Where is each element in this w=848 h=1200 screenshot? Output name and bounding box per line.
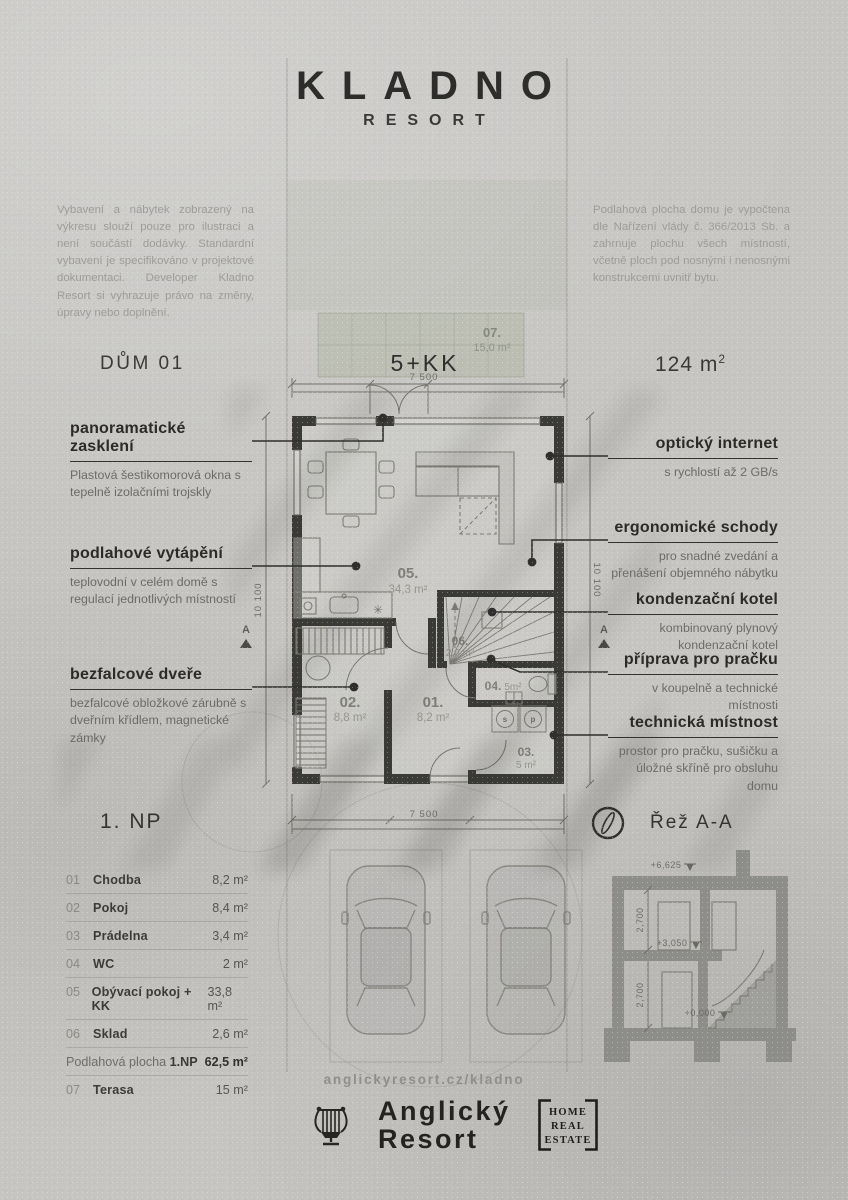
row-no: 04: [66, 957, 93, 971]
room-label-05: 05.: [398, 565, 419, 582]
callout-title: kondenzační kotel: [608, 591, 778, 615]
dimension-right: 10 100: [586, 412, 602, 788]
callout-desc: teplovodní v celém domě s regulací jedno…: [70, 574, 252, 609]
row-name: Pokoj: [93, 901, 128, 915]
table-row: 01 Chodba 8,2 m²: [66, 866, 248, 894]
row-no: 03: [66, 929, 93, 943]
callout-doors: bezfalcové dveře bezfalcové obložkové zá…: [70, 666, 252, 747]
dim-height-left: 10 100: [253, 582, 264, 617]
callout-washer-prep: příprava pro pračku v koupelně a technic…: [608, 651, 778, 715]
room-area-02: 8,8 m²: [334, 712, 367, 724]
callout-title: podlahové vytápění: [70, 545, 252, 569]
callout-boiler: kondenzační kotel kombinovaný plynový ko…: [608, 591, 778, 655]
row-area: 2 m²: [223, 957, 248, 971]
row-area: 33,8 m²: [208, 985, 248, 1013]
lyre-icon: [298, 1096, 362, 1154]
table-row: 06 Sklad 2,6 m²: [66, 1020, 248, 1048]
dryer-letter: p: [531, 715, 536, 724]
room-legend-table: 01 Chodba 8,2 m² 02 Pokoj 8,4 m² 03 Prád…: [66, 866, 248, 1103]
room-label-terrace-no: 07.: [483, 325, 501, 340]
row-area: 2,6 m²: [212, 1027, 248, 1041]
unit-area-sup: 2: [718, 352, 726, 366]
svg-text:2,700: 2,700: [635, 982, 645, 1007]
row-no: 05: [66, 985, 92, 999]
table-row: 02 Pokoj 8,4 m²: [66, 894, 248, 922]
compass-icon: [593, 808, 623, 838]
brand-line-1: Anglický: [378, 1097, 511, 1125]
room-label-04: 04.: [485, 679, 502, 693]
disclaimer-left: Vybavení a nábytek zobrazený na výkresu …: [57, 202, 254, 322]
parking: [330, 850, 582, 1062]
chimney: [736, 850, 750, 878]
room-area-01: 8,2 m²: [417, 712, 450, 724]
unit-area-value: 124 m: [655, 353, 718, 376]
svg-text:+6,625: +6,625: [651, 860, 682, 870]
dim-width-bottom: 7 500: [410, 809, 439, 820]
row-name: Chodba: [93, 873, 141, 887]
row-name: Sklad: [93, 1027, 128, 1041]
callout-title: panoramatické zasklení: [70, 420, 252, 462]
brand-logo-row: Anglický Resort HOME REAL ESTATE: [298, 1096, 599, 1154]
callout-title: příprava pro pračku: [608, 651, 778, 675]
room-area-05: 34,3 m²: [389, 584, 428, 596]
disclaimer-right: Podlahová plocha domu je vypočtena dle N…: [593, 202, 790, 288]
car-icon: [482, 866, 570, 1034]
page-title: KLADNO: [0, 64, 848, 109]
floor-label: 1. NP: [100, 810, 163, 834]
callout-tech-room: technická místnost prostor pro pračku, s…: [608, 714, 778, 795]
brand-line-2: Resort: [378, 1125, 511, 1153]
table-row: 03 Prádelna 3,4 m²: [66, 922, 248, 950]
callout-title: ergonomické schody: [608, 519, 778, 543]
svg-text:A: A: [600, 624, 608, 636]
badge-line-1: HOME: [549, 1107, 587, 1118]
room-label-terrace-area: 15,0 m²: [473, 342, 511, 354]
table-row: 05 Obývací pokoj + KK 33,8 m²: [66, 978, 248, 1020]
row-no: 01: [66, 873, 93, 887]
section-label: Řež A-A: [650, 812, 734, 834]
room-area-04: 5m²: [504, 682, 522, 693]
total-floor: 1.NP: [170, 1055, 198, 1069]
brand-name: Anglický Resort: [378, 1097, 511, 1153]
badge-line-3: ESTATE: [544, 1135, 591, 1146]
fridge-snowflake-icon: ✳: [373, 603, 383, 617]
callout-title: technická místnost: [608, 714, 778, 738]
svg-text:2,700: 2,700: [635, 907, 645, 932]
svg-text:A: A: [242, 624, 250, 636]
dim-height-right: 10 100: [591, 562, 602, 597]
section-drawing: +6,625 +3,050 +0,000 2,700 2,700: [604, 850, 796, 1062]
callout-internet: optický internet s rychlostí až 2 GB/s: [608, 435, 778, 481]
terrace-door-arcs: [370, 385, 428, 414]
unit-area-label: 124 m2: [655, 352, 726, 377]
total-label-text: Podlahová plocha: [66, 1055, 170, 1069]
section-marker-left: A: [240, 624, 252, 648]
callout-desc: s rychlostí až 2 GB/s: [608, 464, 778, 481]
poster: 07. 15,0 m² 7 500: [0, 0, 848, 1200]
row-area: 3,4 m²: [212, 929, 248, 943]
dimension-left: 10 100: [253, 412, 270, 788]
callout-title: bezfalcové dveře: [70, 666, 252, 690]
row-no: 06: [66, 1027, 93, 1041]
total-area: 62,5 m²: [205, 1055, 248, 1069]
room-area-03: 5 m²: [516, 760, 537, 771]
svg-text:+3,050: +3,050: [657, 938, 688, 948]
callout-desc: Plastová šestikomorová okna s tepelně iz…: [70, 467, 252, 502]
row-area: 8,2 m²: [212, 873, 248, 887]
callout-desc: bezfalcové obložkové zárubně s dveřním k…: [70, 695, 252, 747]
callout-glazing: panoramatické zasklení Plastová šestikom…: [70, 420, 252, 502]
row-name: Prádelna: [93, 929, 148, 943]
table-row: 04 WC 2 m²: [66, 950, 248, 978]
unit-house-label: DŮM 01: [100, 353, 185, 375]
callout-title: optický internet: [608, 435, 778, 459]
callout-desc: v koupelně a technické místnosti: [608, 680, 778, 715]
badge-line-2: REAL: [551, 1121, 585, 1132]
room-label-06: 06.: [452, 634, 469, 648]
row-name: WC: [93, 957, 114, 971]
page-subtitle: RESORT: [0, 112, 848, 130]
unit-layout-label: 5+KK: [380, 350, 470, 377]
total-label: Podlahová plocha 1.NP: [66, 1055, 198, 1069]
section-stairs: [708, 950, 776, 1028]
room-label-02: 02.: [340, 694, 361, 711]
dimension-bottom: 7 500: [288, 794, 568, 834]
callout-desc: kombinovaný plynový kondenzační kotel: [608, 620, 778, 655]
row-area: 8,4 m²: [212, 901, 248, 915]
callout-floor-heating: podlahové vytápění teplovodní v celém do…: [70, 545, 252, 609]
callout-stairs: ergonomické schody pro snadné zvedání a …: [608, 519, 778, 583]
callout-desc: prostor pro pračku, sušičku a úložné skř…: [608, 743, 778, 795]
home-real-estate-badge: HOME REAL ESTATE: [537, 1098, 599, 1152]
floor-plan: ✳: [292, 385, 564, 784]
room-label-03: 03.: [518, 745, 535, 759]
car-icon: [342, 866, 430, 1034]
row-no: 02: [66, 901, 93, 915]
row-name: Obývací pokoj + KK: [92, 985, 208, 1013]
svg-text:+0,000: +0,000: [685, 1008, 716, 1018]
room-label-01: 01.: [423, 694, 444, 711]
callout-desc: pro snadné zvedání a přenášení objemného…: [608, 548, 778, 583]
website-url: anglickyresort.cz/kladno: [0, 1072, 848, 1087]
washer-letter: s: [503, 715, 508, 724]
room-area-06: 2,6 m²: [446, 648, 475, 659]
